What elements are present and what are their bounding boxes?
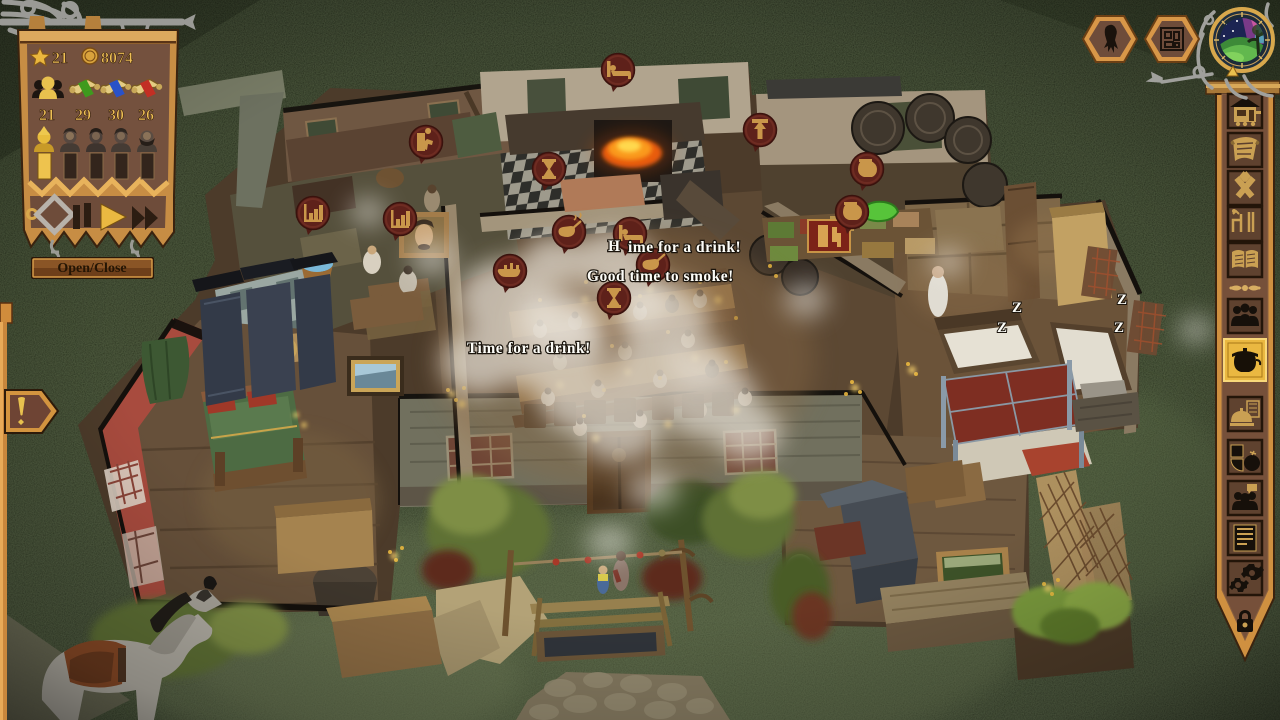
svg-text:Open/Close: Open/Close [57, 261, 126, 276]
svg-text:26: 26 [138, 107, 154, 124]
svg-text:30: 30 [108, 107, 124, 124]
svg-text:8074: 8074 [101, 50, 133, 67]
svg-text:21: 21 [39, 107, 55, 124]
svg-text:29: 29 [75, 107, 91, 124]
svg-text:21: 21 [52, 50, 68, 67]
